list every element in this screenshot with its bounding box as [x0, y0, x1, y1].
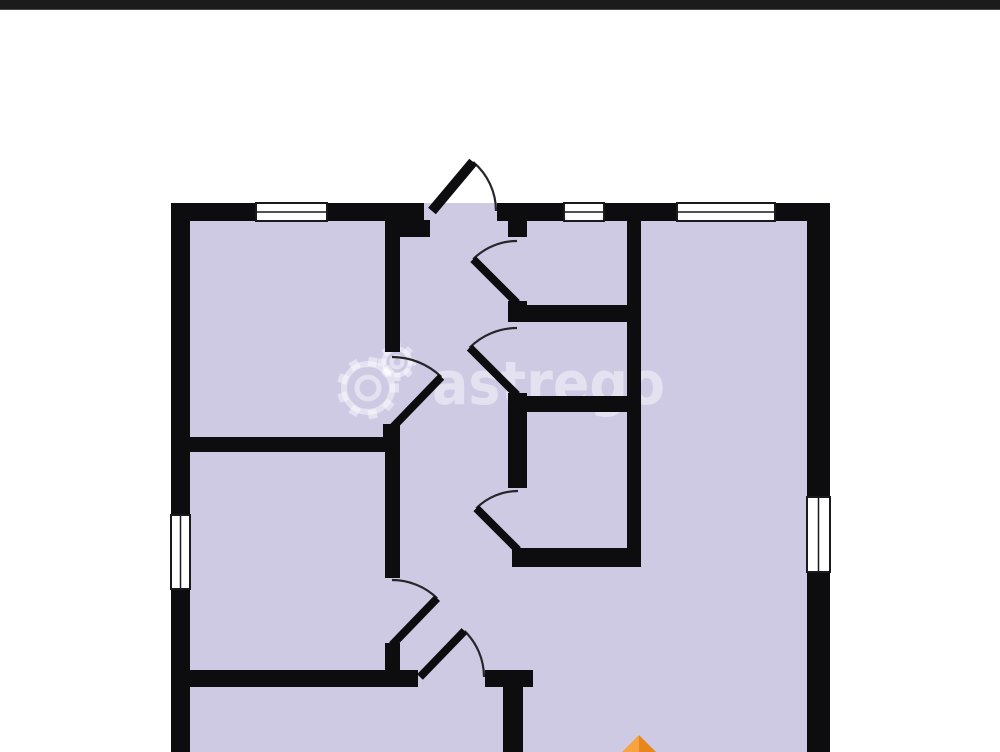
window-top-left [256, 203, 327, 221]
wall-bedroom1-right-wall [385, 220, 400, 352]
wall-outer-right-lower [807, 572, 830, 752]
floorplan-image: astrego [0, 0, 1000, 752]
wall-entry-right-stub [508, 220, 527, 237]
wall-divider-left-h2 [190, 670, 418, 687]
wall-wc-bottom-wall [508, 305, 641, 322]
window-left [171, 515, 190, 589]
window-top-middle [564, 203, 604, 221]
window-top-right [677, 203, 775, 221]
window-right [807, 497, 830, 572]
wall-bath-bottom-wall [508, 396, 641, 412]
wall-outer-top-4 [604, 203, 677, 221]
wall-divider-left-h2b [485, 670, 533, 687]
screenshot-root: astrego [0, 0, 1000, 752]
wall-bottom-room-right-wall [503, 687, 523, 752]
wall-storage-left-wall [508, 412, 527, 488]
wall-outer-top-3 [497, 203, 564, 221]
wall-bedroom2-door-stub [385, 643, 400, 672]
wall-divider-left-h1 [190, 437, 400, 452]
wall-bedroom2-right-wall [385, 452, 400, 578]
wall-outer-top-2 [327, 203, 424, 221]
wall-living-left-wall [627, 220, 641, 567]
wall-storage-bottom-wall [512, 548, 641, 567]
wall-outer-left-lower [171, 589, 190, 752]
wall-outer-left-upper [171, 203, 190, 515]
wall-outer-right-upper [807, 203, 830, 497]
